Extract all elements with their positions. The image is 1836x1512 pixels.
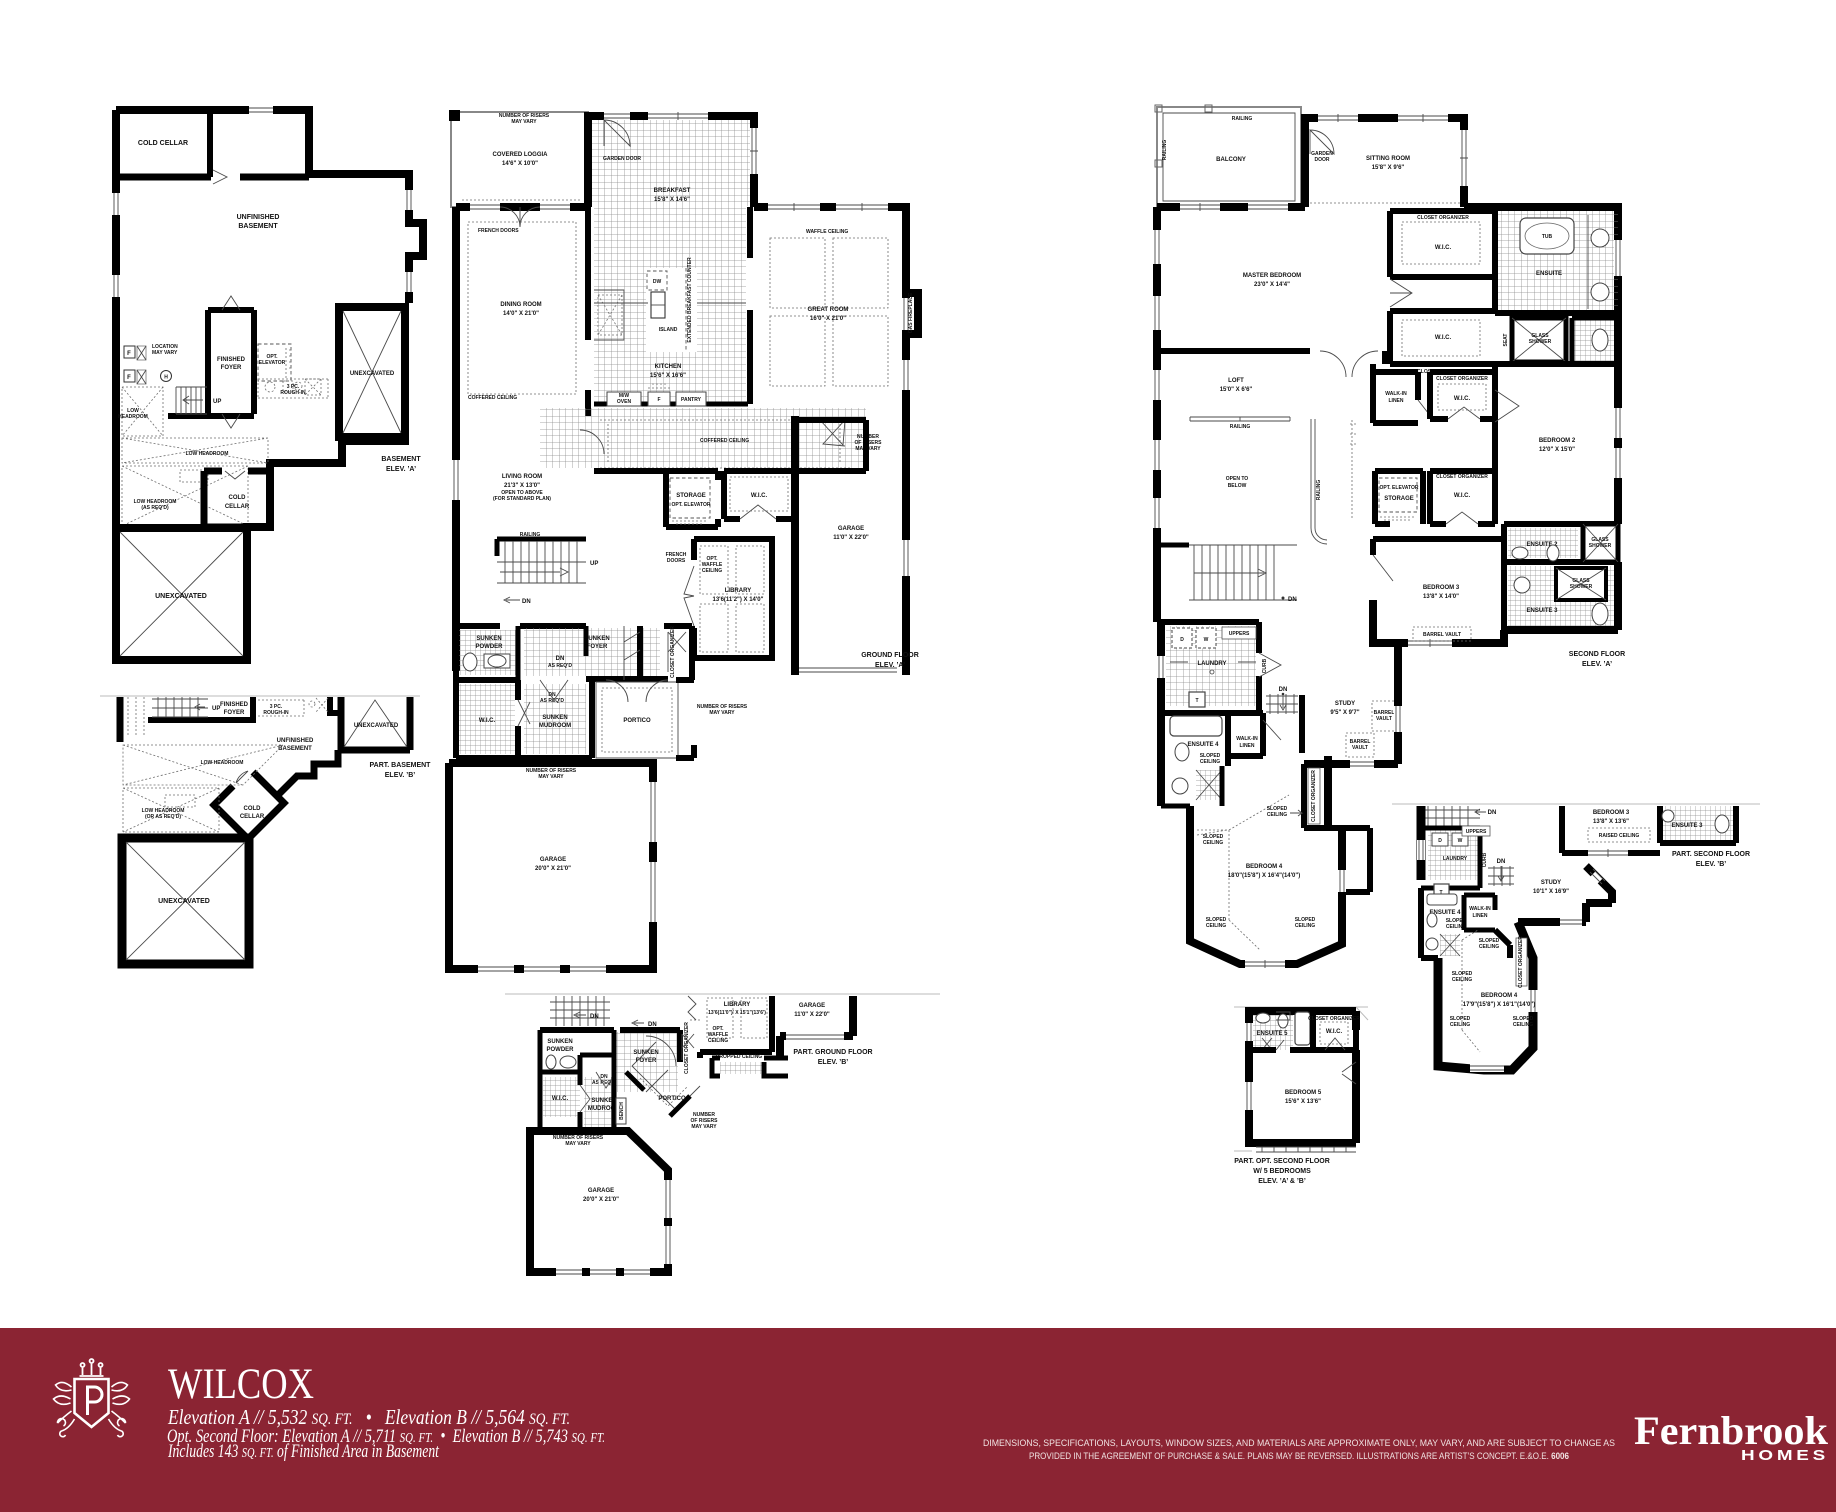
svg-text:GREAT ROOM: GREAT ROOM [808,307,849,313]
svg-text:ELEVATOR: ELEVATOR [259,360,286,366]
svg-text:(OR AS REQ'D): (OR AS REQ'D) [145,814,181,820]
svg-text:UPPERS: UPPERS [1466,829,1487,835]
svg-text:20'0" X 21'0": 20'0" X 21'0" [535,866,571,872]
svg-text:CLOSET ORGANIZER: CLOSET ORGANIZER [1436,376,1488,382]
svg-text:MAY VARY: MAY VARY [538,774,564,780]
svg-text:ELEV. ’A’ & ’B’: ELEV. ’A’ & ’B’ [1258,1178,1306,1185]
svg-text:Includes 143 SQ. FT. of Finish: Includes 143 SQ. FT. of Finished Area in… [167,1442,439,1462]
svg-text:HOMES: HOMES [1741,1447,1829,1464]
svg-text:WALK-IN: WALK-IN [1385,391,1407,397]
svg-text:W.I.C.: W.I.C. [552,1096,569,1102]
svg-text:PART. GROUND FLOOR: PART. GROUND FLOOR [793,1049,872,1056]
svg-text:UP: UP [213,399,221,405]
svg-text:15'8" X 14'6": 15'8" X 14'6" [654,197,690,203]
svg-text:18'0"(15'8") X 16'4"(14'0"): 18'0"(15'8") X 16'4"(14'0") [1228,873,1300,879]
svg-text:ISLAND: ISLAND [659,327,678,333]
svg-text:PORTICO: PORTICO [623,718,651,724]
svg-text:PANTRY: PANTRY [681,397,702,403]
svg-text:16'0" X 21'0": 16'0" X 21'0" [810,316,846,322]
svg-text:BEDROOM 4: BEDROOM 4 [1481,993,1518,999]
svg-text:SHOWER: SHOWER [1589,543,1612,549]
svg-text:GROUND FLOOR: GROUND FLOOR [861,652,919,659]
svg-text:BEDROOM 2: BEDROOM 2 [1539,438,1576,444]
svg-text:WILCOX: WILCOX [168,1361,314,1408]
svg-text:PART. SECOND FLOOR: PART. SECOND FLOOR [1672,851,1750,858]
svg-text:BELOW: BELOW [1228,483,1247,489]
svg-text:MAY VARY: MAY VARY [691,1124,717,1130]
svg-text:CEILING: CEILING [1203,840,1223,846]
svg-text:13'6(11'2") X 14'0": 13'6(11'2") X 14'0" [712,597,763,603]
svg-text:LOFT: LOFT [1228,378,1244,384]
svg-text:GARAGE: GARAGE [799,1003,825,1009]
svg-text:W.I.C.: W.I.C. [1435,245,1452,251]
svg-text:OPT. ELEVATOR: OPT. ELEVATOR [1380,485,1419,491]
svg-text:14'6" X 10'0": 14'6" X 10'0" [502,161,538,167]
svg-text:9'5" X 9'7": 9'5" X 9'7" [1330,710,1359,716]
svg-text:FOYER: FOYER [221,365,242,371]
svg-text:ROUGH-IN: ROUGH-IN [263,710,289,716]
svg-text:BARREL VAULT: BARREL VAULT [1423,632,1461,638]
svg-text:FINISHED: FINISHED [220,702,249,708]
svg-text:11'0" X 22'0": 11'0" X 22'0" [833,535,869,541]
svg-text:CEILING: CEILING [1206,923,1226,929]
svg-text:GARDEN DOOR: GARDEN DOOR [603,156,641,162]
svg-text:LINEN: LINEN [1240,743,1255,749]
svg-text:FRENCH DOORS: FRENCH DOORS [478,228,519,234]
svg-text:EXTENDED BREAKFAST COUNTER: EXTENDED BREAKFAST COUNTER [687,257,693,343]
svg-text:DN: DN [1488,810,1497,816]
svg-text:TUB: TUB [1542,234,1553,240]
svg-text:COLD CELLAR: COLD CELLAR [138,140,188,147]
svg-text:CEILING: CEILING [708,1038,728,1044]
svg-text:LIBRARY: LIBRARY [725,588,751,594]
svg-text:CLOSET ORGANIZER: CLOSET ORGANIZER [1311,770,1317,822]
svg-text:DN: DN [1288,597,1297,603]
svg-text:UNFINISHED: UNFINISHED [237,214,280,221]
svg-text:LIVING ROOM: LIVING ROOM [502,474,542,480]
svg-text:10'1" X 16'9": 10'1" X 16'9" [1533,889,1569,895]
svg-text:LOW HEADROOM: LOW HEADROOM [201,760,244,766]
svg-text:UP: UP [590,561,598,567]
svg-text:WALK-IN: WALK-IN [1469,906,1491,912]
svg-text:20'0" X 21'0": 20'0" X 21'0" [583,1197,619,1203]
svg-text:14'0" X 21'0": 14'0" X 21'0" [503,311,539,317]
svg-text:W.I.C.: W.I.C. [1454,493,1471,499]
svg-text:CEILING: CEILING [1452,977,1472,983]
svg-text:SUNKEN: SUNKEN [633,1050,658,1056]
svg-text:ELEV. ’A’: ELEV. ’A’ [386,466,416,473]
svg-text:KITCHEN: KITCHEN [655,364,682,370]
svg-text:GARAGE: GARAGE [540,857,566,863]
svg-text:ELEV. ’B’: ELEV. ’B’ [1696,861,1727,868]
svg-text:12'0" X 15'0": 12'0" X 15'0" [1539,447,1575,453]
svg-text:FOYER: FOYER [587,644,608,650]
svg-text:(AS REQ'D): (AS REQ'D) [141,505,169,511]
svg-text:GARAGE: GARAGE [838,526,864,532]
svg-text:DN: DN [556,656,565,662]
svg-text:AS REQ'D: AS REQ'D [540,698,564,704]
svg-text:UPPERS: UPPERS [1229,631,1250,637]
svg-text:DN: DN [1279,687,1288,693]
svg-text:DW: DW [653,279,662,285]
svg-text:MUDROOM: MUDROOM [539,723,571,729]
svg-text:PART. BASEMENT: PART. BASEMENT [370,762,432,769]
svg-text:SEAT: SEAT [1503,334,1509,347]
svg-text:23'0" X 14'4": 23'0" X 14'4" [1254,282,1290,288]
svg-text:15'6" X 13'6": 15'6" X 13'6" [1285,1099,1321,1105]
svg-text:COFFERED CEILING: COFFERED CEILING [700,438,749,444]
svg-text:F: F [127,375,131,381]
svg-text:21'3" X 13'0": 21'3" X 13'0" [504,483,540,489]
svg-text:ENSUITE 3: ENSUITE 3 [1671,823,1703,829]
svg-text:WAFFLE CEILING: WAFFLE CEILING [806,229,848,235]
svg-text:COLD: COLD [244,806,262,812]
svg-text:AS REQ'D: AS REQ'D [548,663,572,669]
svg-text:BEDROOM 5: BEDROOM 5 [1285,1090,1322,1096]
svg-text:PROVIDED IN THE AGREEMENT OF P: PROVIDED IN THE AGREEMENT OF PURCHASE & … [1029,1451,1569,1461]
svg-text:GAS FIREPLACE: GAS FIREPLACE [908,292,914,333]
svg-text:ENSUITE 3: ENSUITE 3 [1526,608,1558,614]
svg-text:CEILING: CEILING [1295,923,1315,929]
svg-text:CEILING: CEILING [1479,944,1499,950]
svg-text:CURB: CURB [1262,658,1268,673]
svg-text:DIMENSIONS, SPECIFICATIONS, LA: DIMENSIONS, SPECIFICATIONS, LAYOUTS, WIN… [983,1438,1615,1448]
svg-text:BENCH: BENCH [619,1102,625,1120]
svg-text:11'0" X 22'0": 11'0" X 22'0" [794,1012,830,1018]
svg-text:BASEMENT: BASEMENT [278,746,312,752]
svg-text:T: T [1195,698,1198,704]
svg-text:OVEN: OVEN [617,399,632,405]
svg-text:DN: DN [522,599,531,605]
svg-text:13'8" X 13'6": 13'8" X 13'6" [1593,819,1629,825]
svg-text:ELEV. ’B’: ELEV. ’B’ [385,772,416,779]
svg-text:BASEMENT: BASEMENT [238,223,278,230]
svg-text:CELLAR: CELLAR [240,814,265,820]
svg-text:W: W [1458,838,1463,844]
svg-text:MAY VARY: MAY VARY [565,1141,591,1147]
svg-text:LINEN: LINEN [1389,398,1404,404]
svg-text:RAILING: RAILING [1232,116,1253,122]
svg-text:ELEV. ’B’: ELEV. ’B’ [818,1059,849,1066]
svg-text:DOORS: DOORS [667,558,686,564]
svg-text:COFFERED CEILING: COFFERED CEILING [468,395,517,401]
svg-text:CLOSET ORGANIZER: CLOSET ORGANIZER [1436,474,1488,480]
svg-text:SUNKEN: SUNKEN [542,715,567,721]
svg-text:UNFINISHED: UNFINISHED [277,738,314,744]
svg-text:PART. OPT. SECOND FLOOR: PART. OPT. SECOND FLOOR [1234,1158,1330,1165]
svg-text:SECOND FLOOR: SECOND FLOOR [1569,651,1625,658]
svg-text:CLOSET ORGANIZER: CLOSET ORGANIZER [1308,1016,1360,1022]
svg-text:CEILING: CEILING [1200,759,1220,765]
svg-text:D: D [1180,637,1184,643]
svg-text:15'8" X 9'6": 15'8" X 9'6" [1372,165,1405,171]
svg-text:CELLAR: CELLAR [225,504,250,510]
svg-text:POWDER: POWDER [547,1047,575,1053]
svg-text:STUDY: STUDY [1335,701,1355,707]
svg-text:W: W [1204,637,1209,643]
svg-text:DN: DN [1497,859,1506,865]
svg-text:SUNKEN: SUNKEN [547,1039,572,1045]
svg-text:CLOSET ORGANIZER: CLOSET ORGANIZER [670,626,676,678]
svg-text:RAILING: RAILING [1162,140,1168,161]
svg-text:SITTING ROOM: SITTING ROOM [1366,156,1410,162]
svg-text:UNEXCAVATED: UNEXCAVATED [158,898,210,905]
svg-text:MAY VARY: MAY VARY [152,350,178,356]
svg-text:SUNKEN: SUNKEN [476,636,501,642]
svg-text:RAILING: RAILING [520,532,541,538]
svg-text:MAY VARY: MAY VARY [511,119,537,125]
svg-text:SHOWER: SHOWER [1570,584,1593,590]
svg-text:FOYER: FOYER [224,710,245,716]
svg-text:W.I.C.: W.I.C. [1435,335,1452,341]
svg-text:15'0" X 6'6": 15'0" X 6'6" [1220,387,1253,393]
svg-text:VAULT: VAULT [1352,745,1368,751]
svg-text:DOOR: DOOR [1315,157,1330,163]
svg-text:RAILING: RAILING [1316,480,1322,501]
svg-text:CLOSET ORGANIZER: CLOSET ORGANIZER [1417,215,1469,221]
svg-text:LAUNDRY: LAUNDRY [1197,661,1226,667]
svg-text:CEILING: CEILING [1450,1022,1470,1028]
svg-text:BASEMENT: BASEMENT [381,456,421,463]
svg-text:F: F [127,351,131,357]
svg-text:PORTICO: PORTICO [658,1096,686,1102]
svg-text:13'6(11'0")' X 15'1"(13'6'): 13'6(11'0")' X 15'1"(13'6') [708,1010,766,1016]
svg-text:W.I.C.: W.I.C. [1326,1029,1343,1035]
svg-text:LAUNDRY: LAUNDRY [1443,856,1468,862]
svg-text:CLOSET ORGANIZER: CLOSET ORGANIZER [1518,936,1524,988]
svg-text:DN: DN [590,1014,599,1020]
svg-text:OPT. ELEVATOR: OPT. ELEVATOR [672,502,711,508]
svg-text:UNEXCAVATED: UNEXCAVATED [350,371,395,377]
svg-text:CURB: CURB [1482,852,1488,867]
svg-text:F: F [657,397,660,403]
svg-text:COVERED LOGGIA: COVERED LOGGIA [492,152,548,158]
svg-text:MAY VARY: MAY VARY [709,710,735,716]
svg-text:UNEXCAVATED: UNEXCAVATED [354,723,399,729]
svg-text:BEDROOM 4: BEDROOM 4 [1246,864,1283,870]
svg-text:VAULT: VAULT [1376,716,1392,722]
svg-text:LIBRARY: LIBRARY [724,1002,750,1008]
svg-text:BREAKFAST: BREAKFAST [654,188,691,194]
svg-text:COLD: COLD [229,495,247,501]
svg-text:W.I.C.: W.I.C. [751,493,768,499]
svg-text:ENSUITE: ENSUITE [1536,271,1562,277]
svg-text:CEILING: CEILING [1513,1022,1533,1028]
svg-text:WALK-IN: WALK-IN [1236,736,1258,742]
svg-text:H: H [164,375,168,381]
svg-text:STORAGE: STORAGE [1384,496,1414,502]
svg-text:SHOWER: SHOWER [1529,339,1552,345]
svg-text:W/ 5 BEDROOMS: W/ 5 BEDROOMS [1253,1168,1311,1175]
svg-text:CLOSET ORGANIZER: CLOSET ORGANIZER [684,1022,690,1074]
svg-text:RAILING: RAILING [1230,424,1251,430]
svg-text:DROPPED CEILING: DROPPED CEILING [716,1054,763,1060]
svg-text:BEDROOM 3: BEDROOM 3 [1593,810,1630,816]
svg-text:STORAGE: STORAGE [676,493,706,499]
svg-text:GARAGE: GARAGE [588,1188,614,1194]
svg-text:HEADROOM: HEADROOM [118,414,148,420]
svg-text:ENSUITE 5: ENSUITE 5 [1256,1031,1288,1037]
svg-text:CEILING: CEILING [702,568,722,574]
svg-text:CEILING: CEILING [1267,812,1287,818]
svg-text:15'6" X 16'6": 15'6" X 16'6" [650,373,686,379]
svg-text:Elevation A // 5,532 SQ. FT.: Elevation A // 5,532 SQ. FT. • Elevation… [167,1405,570,1429]
svg-text:17'9"(15'8") X 16'1"(14'0"): 17'9"(15'8") X 16'1"(14'0") [1463,1002,1535,1008]
svg-text:BEDROOM 3: BEDROOM 3 [1423,585,1460,591]
svg-text:DINING ROOM: DINING ROOM [500,302,541,308]
svg-text:FINISHED: FINISHED [217,357,246,363]
svg-text:OPEN TO: OPEN TO [1226,476,1249,482]
svg-text:STUDY: STUDY [1541,880,1561,886]
svg-text:LINEN: LINEN [1473,913,1488,919]
svg-text:POWDER: POWDER [476,644,504,650]
svg-text:ENSUITE 4: ENSUITE 4 [1187,742,1219,748]
svg-text:UNEXCAVATED: UNEXCAVATED [155,593,207,600]
svg-text:D: D [1438,838,1442,844]
svg-text:ELEV. ’A’: ELEV. ’A’ [875,662,905,669]
svg-text:RAISED CEILING: RAISED CEILING [1599,833,1640,839]
svg-text:W.I.C.: W.I.C. [1454,396,1471,402]
svg-text:BALCONY: BALCONY [1216,157,1246,163]
svg-text:ELEV. ’A’: ELEV. ’A’ [1582,661,1612,668]
svg-text:(FOR STANDARD PLAN): (FOR STANDARD PLAN) [493,496,551,502]
svg-text:ROUGH-IN: ROUGH-IN [280,390,306,396]
svg-text:13'8" X 14'0": 13'8" X 14'0" [1423,594,1459,600]
svg-text:W.I.C.: W.I.C. [479,718,496,724]
svg-text:LOW HEADROOM: LOW HEADROOM [186,451,229,457]
svg-text:MASTER BEDROOM: MASTER BEDROOM [1243,273,1301,279]
